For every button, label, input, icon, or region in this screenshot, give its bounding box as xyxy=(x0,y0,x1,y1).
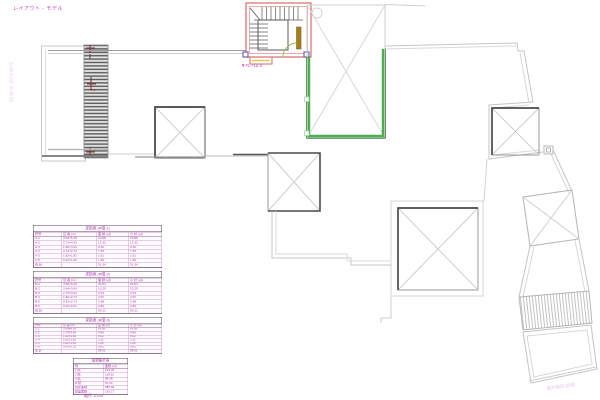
area-table-2-grid: 符号辺 長 (m)面 積 (㎡)小 計 (㎡)B-14.55×5.4624.84… xyxy=(34,278,163,313)
table-cell: 51.34 xyxy=(129,263,162,267)
door-swing-arc xyxy=(283,43,297,57)
shaft-box-2 xyxy=(268,153,320,211)
stairwell-core xyxy=(243,3,311,64)
right-roof-outline xyxy=(385,43,572,193)
area-table-1-grid: 符号辺 長 (m)面 積 (㎡)小 計 (㎡)A-13.64×5.4619.88… xyxy=(34,232,163,267)
shaft-box-right-1 xyxy=(492,108,539,155)
shaft-box-right-2 xyxy=(523,190,579,246)
middle-wall xyxy=(205,155,268,157)
table-cell: 51.34 xyxy=(97,263,129,267)
shaft-box-3 xyxy=(381,159,487,323)
left-roof-outline xyxy=(42,46,86,161)
summary-table-grid: 階面積 (㎡)1 階123.452 階118.623 階96.28R 階51.3… xyxy=(74,364,129,394)
grip-squares xyxy=(243,52,309,57)
table-cell: 56.31 xyxy=(97,309,129,313)
side-note-vertical: 屋根伏図 求積図 xyxy=(8,62,21,144)
cad-drawing-canvas[interactable]: レイアウト - モデル 屋根伏図 求積図 ▼FL+15.4 屋外階段 詳細 求積… xyxy=(0,0,600,400)
table-cell xyxy=(62,349,97,353)
table-cell: 合 計 xyxy=(34,349,62,353)
table-cell xyxy=(62,309,97,313)
corner-post xyxy=(544,146,553,154)
table-cell xyxy=(62,263,97,267)
table-cell: 合 計 xyxy=(34,263,62,267)
corner-note: 屋外階段 詳細 xyxy=(546,385,600,398)
scale-note: 縮尺 1/100 xyxy=(84,393,122,400)
area-table-3-grid: 符号辺 長 (m)面 積 (㎡)小 計 (㎡)C-13.64×4.5516.56… xyxy=(34,324,163,353)
table-cell: 合 計 xyxy=(34,309,62,313)
level-mark-annotation: ▼FL+15.4 xyxy=(241,63,283,73)
exterior-stair xyxy=(519,239,597,383)
layout-tab-text: レイアウト - モデル xyxy=(13,4,63,12)
exterior-stair-treads xyxy=(519,291,592,330)
stair-hatch-strip xyxy=(84,45,108,158)
layout-tab-label[interactable]: レイアウト - モデル xyxy=(13,4,113,19)
shaft-box-1 xyxy=(135,107,205,158)
top-wall xyxy=(48,51,246,54)
table-cell: 38.92 xyxy=(97,349,129,353)
door-leaf xyxy=(283,27,301,57)
green-wall-highlight xyxy=(305,48,386,138)
table-cell: 56.31 xyxy=(129,309,162,313)
shaft-box-top xyxy=(305,5,426,139)
table-cell: 38.92 xyxy=(129,349,162,353)
